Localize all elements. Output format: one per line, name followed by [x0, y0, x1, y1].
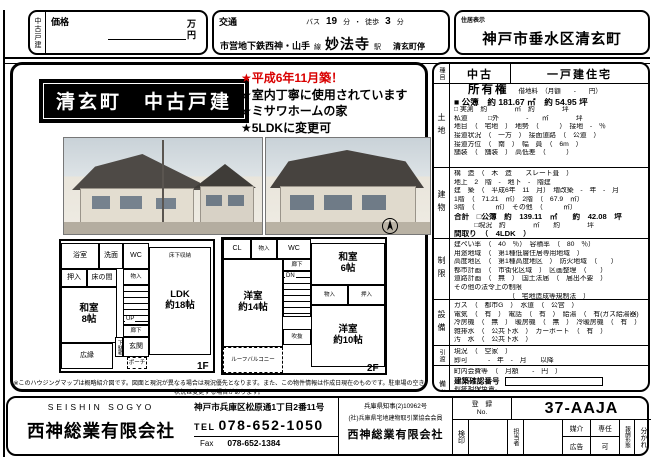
price-box: 中古戸建 価格 万 円 — [28, 10, 208, 55]
city-planning: 都市計画 （ 市街化区域 ） 区画整理 （ ） — [454, 267, 644, 276]
building-floor-areas-3: 3階 （ ㎡） その他 （ ㎡） — [454, 204, 644, 213]
price-label: 価格 — [51, 15, 69, 28]
sales-point-built: ★平成6年11月築！ — [241, 70, 429, 87]
house-window — [290, 195, 314, 210]
front-fence — [266, 222, 430, 234]
room-washroom: 洗面 — [99, 243, 123, 269]
tel-label: TEL — [194, 422, 216, 432]
land-registered-area: ■ 公簿 約 181.67 ㎡ 約 54.95 坪 — [454, 98, 644, 107]
floor-plan-1f: 浴室 洗面 WC LDK 約18帖 床下収納 押入 床の間 物入 和室 8帖 U… — [59, 239, 215, 373]
stamp-check-blank — [469, 420, 508, 454]
room-wc-2f: WC — [277, 239, 311, 259]
address-box: 住居表示 神戸市垂水区清玄町 — [454, 10, 650, 55]
property-type-value: 一戸建住宅 — [511, 64, 648, 83]
land-road-contact: 接道状況 （ 一方 ） 接面道路 （ 公道 ） — [454, 132, 644, 141]
address-value: 神戸市垂水区清玄町 — [456, 28, 648, 49]
room-washitsu-8: 和室 8帖 — [61, 287, 117, 343]
stairs-down-label: DN — [285, 273, 296, 280]
stairs-up: UP — [123, 285, 149, 325]
underfloor-storage-label: 床下収納 — [151, 251, 209, 259]
room-washitsu-6: 和室 6帖 — [311, 243, 385, 285]
building-layout: 間取り （ 4LDK ） — [454, 230, 644, 238]
footer-contact-block: 神戸市兵庫区松原通1丁目2番11号 TEL078-652-1050 Fax078… — [194, 398, 338, 454]
room-porch: ポーチ — [127, 357, 147, 369]
advertising-label: 広告 — [563, 437, 591, 454]
section-header-notes: 備考 — [434, 366, 450, 392]
land-measured-area: □ 実測 約 ㎡ 約 坪 — [454, 106, 644, 115]
company-address: 神戸市兵庫区松原通1丁目2番11号 — [194, 401, 338, 413]
land-private-road: 私道 □外 - ㎡ 坪 — [454, 115, 644, 124]
land-ownership: 所有権 — [468, 86, 509, 95]
property-flyer-sheet: 中古戸建 価格 万 円 交通 バス19分・徒歩3分 市営地下鉄西神・山手線妙法寺… — [0, 0, 655, 463]
height-fire-district: 高度地区 （ 第1種高度地区 ） 防火地域 （ ） — [454, 258, 644, 267]
road-plan: 道路計画 （ 無 ） 国土法届 （ 届出不要 ） — [454, 275, 644, 284]
facility-electric-phone: 電気 （ 有 ） 電話 （ 有 ） 給湯 （ 有(ガス給湯器) ） — [454, 311, 644, 320]
handover-timing: 即可 - 年 - 月 以降 — [454, 357, 644, 365]
minutes-unit-b: 分 — [397, 19, 404, 26]
building-confirmation-label: 建築確認番号 — [454, 377, 500, 386]
fax-label: Fax — [200, 439, 213, 448]
house-roof — [72, 154, 200, 190]
room-bath: 浴室 — [61, 243, 99, 269]
room-monoire-2f: 物入 — [251, 239, 277, 259]
person-in-charge-label: 担当者 — [508, 420, 524, 454]
house-roof — [194, 164, 256, 188]
main-property-box: 清玄町 中古戸建 ★平成6年11月築！ ★室内丁寧に使用されています ★ミサワホ… — [10, 62, 428, 392]
front-fence — [64, 222, 262, 234]
transport-label: 交通 — [219, 15, 237, 28]
room-corridor-2f: 廊下 — [283, 259, 311, 271]
house-window — [206, 195, 222, 206]
sales-point-layout: ★5LDKに変更可 — [241, 120, 429, 137]
company-name-en: SEISHIN SOGYO — [8, 402, 194, 412]
section-category: 種目 中古 一戸建住宅 — [434, 64, 648, 84]
line-suffix: 線 — [310, 44, 325, 51]
section-header-facilities: 設備 — [434, 300, 450, 345]
stairs-up-label: UP — [125, 316, 135, 323]
room-entrance: 玄関 — [123, 337, 149, 357]
section-notes: 備考 町内会費等 （ 月額 - 円 ） 建築確認番号 瑕疵担保免責。 債権者の抹… — [434, 366, 648, 392]
building-total-registered: 合計 □公簿 約 139.11 ㎡ 約 42.08 坪 — [454, 213, 644, 222]
company-name: 西神総業有限会社 — [8, 418, 194, 443]
floor-label-2f: 2F — [367, 363, 379, 374]
tel-number: 078-652-1050 — [219, 417, 324, 433]
house-window — [156, 198, 176, 209]
fee-split-value: 分かれ — [635, 420, 651, 454]
section-header-land: 土地 — [434, 84, 450, 167]
land-category: 地目 （ 宅地 ） 地勢 （ ） 接地 - ％ — [454, 123, 644, 132]
sales-points: ★平成6年11月築！ ★室内丁寧に使用されています ★ミサワホームの家 ★5LD… — [241, 70, 429, 136]
property-title: 清玄町 中古戸建 — [43, 83, 245, 119]
property-title-box: 清玄町 中古戸建 — [39, 79, 249, 123]
room-monoire-1f: 物入 — [123, 269, 149, 285]
room-veranda: 広縁 — [61, 343, 113, 369]
room-roof-balcony: ルーフバルコニー — [223, 347, 283, 373]
stamp-check-label: 検印 — [453, 420, 469, 454]
floor-label-1f: 1F — [197, 361, 209, 372]
building-structure: 構 造 （ 木 造 スレート葺 ） — [454, 170, 644, 179]
map-disclaimer: ※このハウジングマップは概略紹介図です。図面と現況が異なる場合は現況優先となりま… — [13, 378, 425, 396]
walk-minutes: 3 — [379, 16, 397, 27]
house-window — [92, 196, 110, 209]
section-restrictions: 制限 建ぺい率 （ 40 ％） 容積率 （ 80 ％） 用途地域 （ 第1種低層… — [434, 239, 648, 300]
brokerage-type: 専任 — [591, 420, 619, 437]
rail-line-name: 市営地下鉄西神・山手 — [220, 41, 310, 51]
facility-sewage: 汚 水 （ 公共下水 ） — [454, 336, 644, 345]
section-header-category: 種目 — [434, 64, 450, 83]
land-road-direction: 接道方位 （ 南 ） 幅 員 （ 6m ） — [454, 141, 644, 150]
section-header-building: 建物 — [434, 168, 450, 238]
other-restrictions-label: その他の法令上の制限 — [454, 284, 644, 293]
brokerage-label: 媒介 — [563, 420, 591, 437]
footer-company-block: SEISHIN SOGYO 西神総業有限会社 — [8, 398, 194, 454]
stairs-down: DN — [283, 271, 311, 317]
room-western-14: 洋室 約14帖 — [223, 259, 283, 347]
neighborhood-fees: 町内会費等 （ 月額 - 円 ） — [454, 368, 644, 377]
room-ldk: LDK 約18帖 — [149, 247, 211, 355]
section-handover: 引渡 現況 （ 空家 ） 即可 - 年 - 月 以降 — [434, 346, 648, 366]
footer-license-block: 兵庫県知事(2)10962号 (社)兵庫県宅地建物取引業協会会員 西神総業有限会… — [338, 398, 452, 454]
section-header-restrictions: 制限 — [434, 239, 450, 299]
room-corridor-1f: 廊下 — [123, 325, 149, 337]
footer-registration-block: 登 録 No. 37-AAJA 検印 担当者 媒介 専任 広告 可 報酬形態 分… — [452, 398, 651, 454]
section-land: 土地 所有権借地料 （月額 - 円） ■ 公簿 約 181.67 ㎡ 約 54.… — [434, 84, 648, 168]
station-name: 妙法寺 — [325, 36, 370, 52]
utility-pole — [162, 140, 164, 232]
handover-current-state: 現況 （ 空家 ） — [454, 348, 644, 357]
room-western-10: 洋室 約10帖 — [311, 305, 385, 367]
section-building: 建物 構 造 （ 木 造 スレート葺 ） 地上 2 階 - 地下 - 階建 建 … — [434, 168, 648, 239]
registration-label: 登 録 No. — [453, 398, 512, 419]
room-shoe-cabinet: 下駄箱 — [115, 337, 123, 357]
bus-label: バス — [306, 19, 320, 26]
room-tokonoma: 床の間 — [87, 269, 117, 287]
house-window — [228, 195, 244, 206]
footer-bar: SEISHIN SOGYO 西神総業有限会社 神戸市兵庫区松原通1丁目2番11号… — [6, 396, 649, 456]
sales-point-builder: ★ミサワホームの家 — [241, 103, 429, 120]
room-void: 吹抜 — [283, 329, 311, 345]
address-label: 住居表示 — [461, 15, 485, 24]
price-blank-line — [108, 39, 186, 40]
facility-drainage-carport: 雑排水 （ 公共下水 ） カーポート （ 有 ） — [454, 328, 644, 337]
room-monoire2-2f: 物入 — [311, 285, 348, 305]
page-edge-line — [3, 10, 5, 457]
sales-point-condition: ★室内丁寧に使用されています — [241, 87, 429, 104]
land-rent: 借地料 （月額 - 円） — [519, 88, 602, 97]
coverage-floor-ratio: 建ぺい率 （ 40 ％） 容積率 （ 80 ％） — [454, 241, 644, 250]
rail-line-row: 市営地下鉄西神・山手線妙法寺駅清玄町停 — [220, 34, 425, 54]
price-unit: 万 円 — [187, 19, 196, 41]
property-photo-left — [63, 137, 263, 235]
property-photo-right — [265, 137, 431, 235]
registration-number: 37-AAJA — [512, 398, 651, 419]
fee-type-label: 報酬形態 — [620, 420, 635, 454]
room-oshiire-1f: 押入 — [61, 269, 87, 287]
building-total-actual: □現況 約 ㎡ 約 坪 — [454, 222, 644, 231]
transport-box: 交通 バス19分・徒歩3分 市営地下鉄西神・山手線妙法寺駅清玄町停 — [212, 10, 450, 55]
room-wc-1f: WC — [123, 243, 149, 269]
bus-minutes: 19 — [320, 16, 343, 27]
property-details-panel: 種目 中古 一戸建住宅 土地 所有権借地料 （月額 - 円） ■ 公簿 約 18… — [432, 62, 650, 392]
land-pavement: 舗装 （ 舗装 ） 高低差 （ ） — [454, 149, 644, 158]
fax-number: 078-652-1384 — [227, 438, 280, 448]
building-built-date: 建 築 （ 平成6年 11 月） 増改築 - 年 - 月 — [454, 187, 644, 196]
section-header-handover: 引渡 — [434, 346, 450, 365]
station-suffix: 駅 — [370, 44, 385, 51]
facility-aircon: 冷房機 （ 無 ） 暖房機 （ 無 ） 冷暖房機 （ 有 ） — [454, 319, 644, 328]
house-roof — [270, 150, 424, 188]
building-confirmation-blank — [505, 377, 603, 386]
category-value: 中古 — [450, 64, 511, 83]
house-window — [120, 196, 142, 209]
facility-gas-water: ガス （ 都市G ） 水道 （ 公営 ） — [454, 302, 644, 311]
walk-label: 徒歩 — [365, 19, 379, 26]
license-number: 兵庫県知事(2)10962号 — [339, 401, 452, 410]
other-restrictions-value: （ 宅地造成等規制法 ） — [454, 293, 644, 299]
zoning: 用途地域 （ 第1種低層住居専用地域 ） — [454, 250, 644, 259]
room-closet: CL — [223, 239, 251, 259]
room-oshiire-2f: 押入 — [348, 285, 385, 305]
building-floors: 地上 2 階 - 地下 - 階建 — [454, 179, 644, 188]
separator-dot: ・ — [350, 19, 365, 26]
bus-walk-row: バス19分・徒歩3分 — [306, 16, 404, 27]
building-floor-areas-12: 1階 （ 71.21 ㎡） 2階 （ 67.9 ㎡） — [454, 196, 644, 205]
house-window — [324, 195, 352, 210]
brokerage-grid: 媒介 専任 広告 可 — [563, 420, 620, 454]
advertising-permission: 可 — [591, 437, 619, 454]
person-in-charge-blank — [524, 420, 563, 454]
section-facilities: 設備 ガス （ 都市G ） 水道 （ 公営 ） 電気 （ 有 ） 電話 （ 有 … — [434, 300, 648, 346]
category-side-label: 中古戸建 — [30, 12, 46, 53]
remark-line-1: 瑕疵担保免責。 — [454, 386, 644, 392]
floor-plan-2f: CL 物入 WC 洋室 約14帖 和室 6帖 廊下 DN 物入 押入 洋室 約1… — [221, 237, 387, 375]
company-name-2: 西神総業有限会社 — [339, 426, 452, 442]
association-member: (社)兵庫県宅地建物取引業協会会員 — [339, 413, 452, 422]
house-window — [362, 195, 386, 210]
bus-stop-name: 清玄町停 — [385, 42, 425, 51]
